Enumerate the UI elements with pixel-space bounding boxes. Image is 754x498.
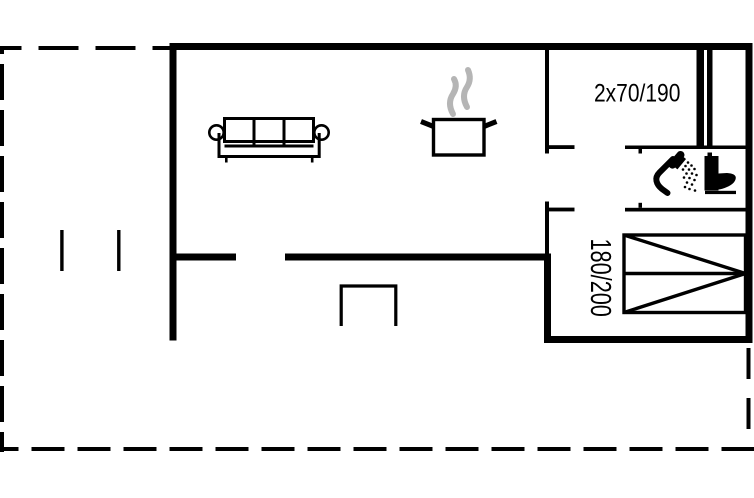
- svg-text:180/200: 180/200: [584, 239, 616, 317]
- svg-text:2x70/190: 2x70/190: [594, 79, 680, 107]
